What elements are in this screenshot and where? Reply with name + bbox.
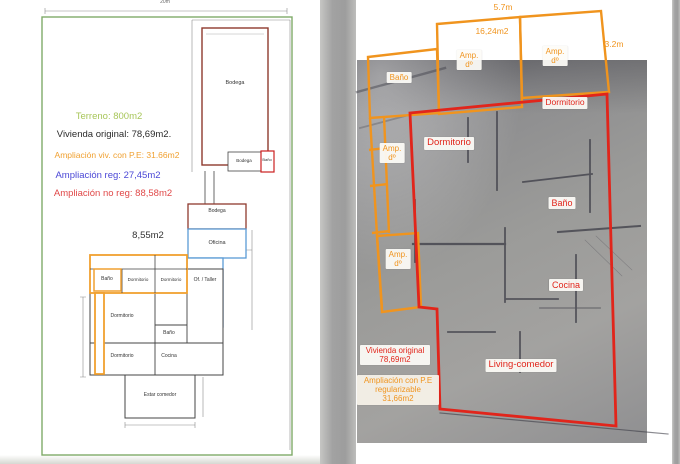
plan-linework bbox=[0, 0, 680, 464]
room-dormitorio-bottom: Dormitorio bbox=[110, 354, 133, 360]
room-cocina: Cocina bbox=[161, 354, 177, 360]
tag-living-comedor: Living-comedor bbox=[486, 359, 557, 372]
area-note: 8,55m2 bbox=[132, 231, 164, 242]
legend-ampliacion-no-reg: Ampliación no reg: 88,58m2 bbox=[54, 189, 172, 200]
dim-area: 16,24m2 bbox=[475, 27, 508, 37]
document-viewer: 20m Terreno: 800m2 Vivienda original: 78… bbox=[0, 0, 680, 464]
room-of-taller: Of. / Taller bbox=[194, 278, 217, 284]
room-oficina: Oficina bbox=[208, 240, 225, 246]
tag-dormitorio-left: Dormitorio bbox=[424, 137, 474, 150]
bodega-big-outline bbox=[202, 28, 268, 165]
tag-amp-d-top-right: Amp. dº bbox=[543, 46, 568, 66]
room-dormitorio-top-2: Dormitorio bbox=[161, 277, 182, 282]
legend-vivienda-original: Vivienda original: 78,69m2. bbox=[57, 130, 171, 141]
room-dormitorio-top-1: Dormitorio bbox=[128, 277, 149, 282]
legend-terreno: Terreno: 800m2 bbox=[76, 112, 143, 123]
room-estar-comedor: Estar comedor bbox=[144, 393, 177, 399]
tag-bano-red: Baño bbox=[548, 197, 575, 209]
ampliacion-top-row bbox=[90, 255, 187, 293]
room-bano-top: Baño bbox=[101, 277, 113, 283]
summary-ampliacion: Ampliación con P.E regularizable 31,66m2 bbox=[357, 375, 439, 405]
room-bano-small: Baño bbox=[262, 158, 271, 163]
corridor-walls bbox=[205, 171, 214, 204]
tag-dormitorio-top: Dormitorio bbox=[542, 97, 587, 109]
dim-right-side: 3.2m bbox=[605, 40, 624, 50]
site-top-dimension: 20m bbox=[160, 0, 170, 6]
dim-top-width: 5.7m bbox=[494, 3, 513, 13]
room-bodega-big: Bodega bbox=[226, 80, 245, 86]
room-bano-right: Baño bbox=[163, 331, 175, 337]
legend-ampliacion-reg: Ampliación reg: 27,45m2 bbox=[55, 171, 160, 182]
tag-bano-orange: Baño bbox=[387, 72, 412, 83]
tag-amp-d-top-left: Amp. dº bbox=[457, 50, 482, 70]
room-dormitorio-mid: Dormitorio bbox=[110, 314, 133, 320]
tag-amp-d-lower-left: Amp. dº bbox=[386, 249, 411, 269]
summary-vivienda-original: Vivienda original 78,69m2 bbox=[360, 345, 430, 365]
room-bodega-small: Bodega bbox=[236, 158, 252, 163]
tag-amp-d-mid-left: Amp. dº bbox=[380, 143, 405, 163]
ampliacion-left-strip bbox=[95, 293, 104, 374]
tag-cocina-red: Cocina bbox=[549, 279, 583, 291]
legend-ampliacion-pe: Ampliación viv. con P.E: 31.66m2 bbox=[55, 151, 180, 161]
room-bodega-mid: Bodega bbox=[208, 209, 225, 215]
